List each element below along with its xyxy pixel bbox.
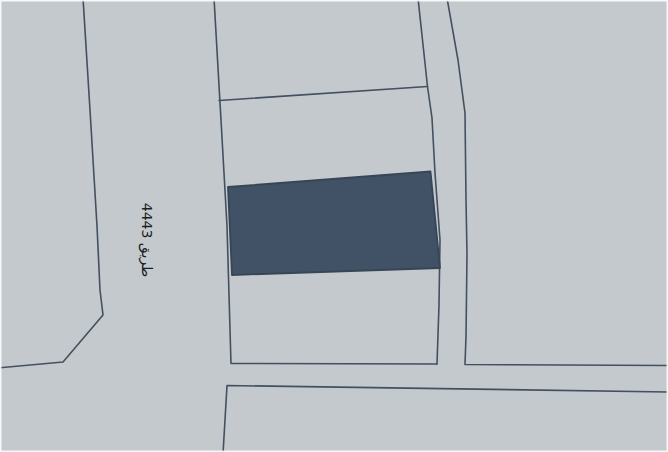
highlighted-parcel[interactable]	[228, 172, 440, 276]
map-viewport[interactable]: طريق 4443	[0, 0, 668, 452]
parcel-map-canvas[interactable]	[0, 0, 668, 452]
